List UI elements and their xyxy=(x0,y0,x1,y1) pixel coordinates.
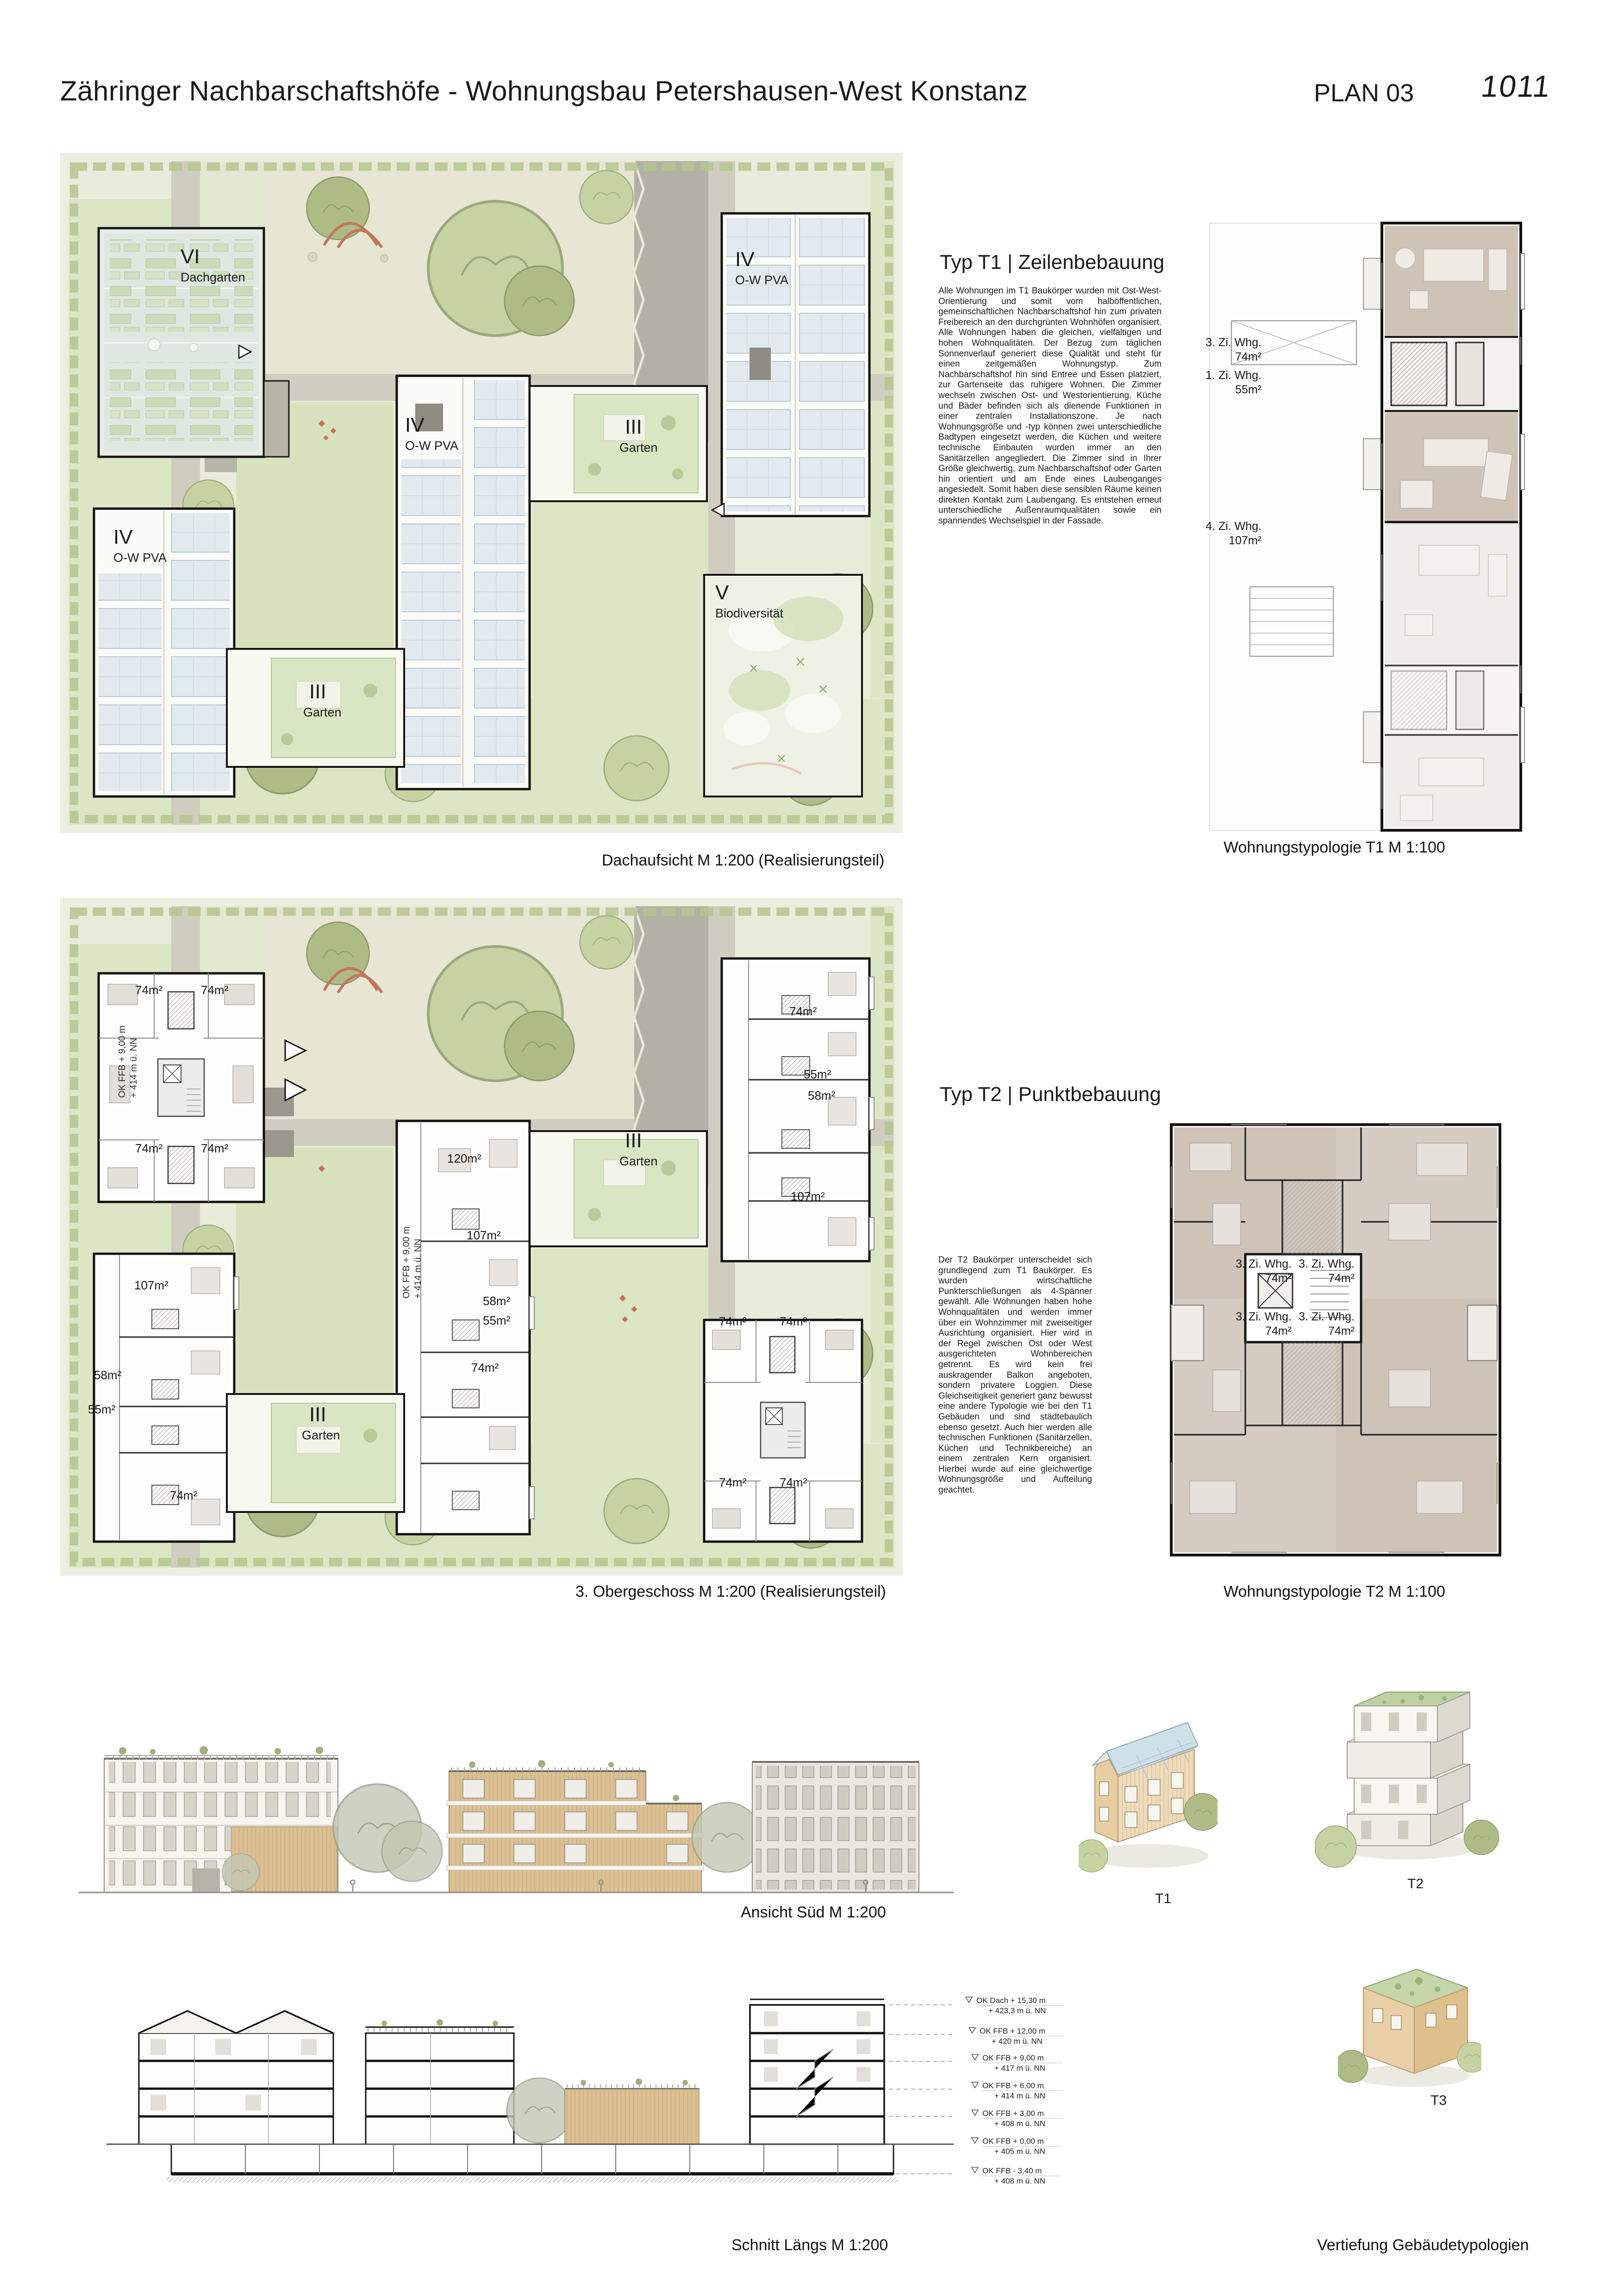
area-label: 74m² xyxy=(135,983,162,997)
t2-unit-area: 74m² xyxy=(1280,1271,1355,1286)
t2-unit-label: 3. Zi. Whg. 74m² xyxy=(1280,1257,1355,1286)
building-iv-east-numeral: IV xyxy=(735,249,755,270)
level-note-line2: + 414 m ü. NN xyxy=(412,1226,424,1299)
building-iii-east-numeral: III xyxy=(625,417,642,438)
level-label: OK FFB + 12,00 m xyxy=(980,2026,1064,2036)
t1-unit-label: 4. Zi. Whg. 107m² xyxy=(1183,519,1262,548)
level-altitude: + 420 m ü. NN xyxy=(980,2036,1064,2046)
typ-t1-body: Alle Wohnungen im T1 Baukörper wurden mi… xyxy=(938,286,1162,527)
area-label: 55m² xyxy=(88,1402,115,1417)
t1-unit-type: 1. Zi. Whg. xyxy=(1183,368,1262,383)
building-iv-west-name: O-W PVA xyxy=(113,551,167,565)
building-iv-east-name: O-W PVA xyxy=(735,273,788,287)
level-annotation: OK Dach + 15,30 m+ 423,3 m ü. NN xyxy=(965,1996,1064,2016)
typ-t1-heading: Typ T1 | Zeilenbebauung xyxy=(940,251,1164,274)
area-label: 58m² xyxy=(808,1089,835,1103)
garden-iii-east-name: Garten xyxy=(619,1154,658,1168)
level-altitude: + 414 m ü. NN xyxy=(982,2091,1062,2101)
building-iv-mid-numeral: IV xyxy=(405,415,425,436)
area-label: 74m² xyxy=(201,1141,228,1156)
t2-typology-drawing xyxy=(1157,1111,1514,1569)
area-label: 107m² xyxy=(791,1189,825,1204)
area-label: 74m² xyxy=(780,1314,807,1329)
area-label: 55m² xyxy=(483,1313,510,1328)
roof-plan-caption: Dachaufsicht M 1:200 (Realisierungsteil) xyxy=(602,852,884,870)
level-marker-icon xyxy=(971,2054,979,2060)
area-label: 58m² xyxy=(483,1294,510,1308)
level-label: OK Dach + 15,30 m xyxy=(976,1996,1064,2006)
section-drawing xyxy=(106,1972,954,2226)
level-altitude: + 417 m ü. NN xyxy=(982,2063,1062,2073)
t1-unit-type: 4. Zi. Whg. xyxy=(1183,519,1262,534)
level-altitude: + 423,3 m ü. NN xyxy=(976,2006,1064,2016)
area-label: 74m² xyxy=(719,1475,746,1490)
building-v-numeral: V xyxy=(715,582,729,604)
level-label: OK FFB - 3,40 m xyxy=(982,2166,1060,2176)
level-marker-icon xyxy=(971,2109,979,2116)
area-label: 107m² xyxy=(467,1228,501,1243)
level-marker-icon xyxy=(971,2137,979,2144)
area-label: 58m² xyxy=(94,1368,121,1382)
level-label: OK FFB + 9,00 m xyxy=(982,2053,1062,2063)
building-iv-west-numeral: IV xyxy=(113,527,133,548)
garden-iii-west-numeral: III xyxy=(309,1404,326,1425)
plan-number-label: PLAN 03 xyxy=(1314,79,1414,107)
level-altitude: + 408 m ü. NN xyxy=(982,2119,1062,2128)
typ-t2-body: Der T2 Baukörper unterscheidet sich grun… xyxy=(938,1255,1092,1496)
area-label: 74m² xyxy=(471,1361,499,1375)
area-label: 74m² xyxy=(201,983,228,997)
level-altitude: + 408 m ü. NN xyxy=(982,2176,1060,2186)
t2-typology-caption: Wohnungstypologie T2 M 1:100 xyxy=(1224,1583,1445,1601)
t1-unit-area: 107m² xyxy=(1183,534,1262,548)
t1-unit-label: 3. Zi. Whg. 74m² xyxy=(1183,336,1262,364)
t2-unit-type: 3. Zi. Whg. xyxy=(1280,1310,1355,1324)
level-note-line2: + 414 m ü. NN xyxy=(128,1026,140,1098)
building-iii-east-name: Garten xyxy=(619,441,658,454)
building-v-name: Biodiversität xyxy=(715,606,783,620)
building-iii-west-numeral: III xyxy=(309,681,326,703)
axon-t2-label: T2 xyxy=(1407,1876,1424,1892)
level-label: OK FFB + 3,00 m xyxy=(982,2109,1062,2119)
axon-t3-drawing xyxy=(1338,1948,1481,2097)
axon-t3-label: T3 xyxy=(1430,2093,1447,2109)
typologies-caption: Vertiefung Gebäudetypologien xyxy=(1317,2236,1529,2254)
area-label: 55m² xyxy=(804,1067,831,1082)
level-annotation: OK FFB + 0,00 m+ 405 m ü. NN xyxy=(971,2136,1062,2156)
building-vi-numeral: VI xyxy=(181,246,200,268)
level-note-nw: OK FFB + 9,00 m + 414 m ü. NN xyxy=(117,1026,140,1098)
page-title: Zähringer Nachbarschaftshöfe - Wohnungsb… xyxy=(60,75,1028,107)
building-iv-mid-name: O-W PVA xyxy=(405,439,458,453)
level-marker-icon xyxy=(971,2082,979,2088)
level-annotation: OK FFB + 6,00 m+ 414 m ü. NN xyxy=(971,2081,1062,2101)
t1-typology-caption: Wohnungstypologie T1 M 1:100 xyxy=(1224,839,1445,857)
garden-iii-west-name: Garten xyxy=(302,1428,340,1442)
elevation-drawing xyxy=(79,1719,954,1898)
level-note-line1: OK FFB + 9,00 m xyxy=(401,1226,412,1299)
level-label: OK FFB + 6,00 m xyxy=(982,2081,1062,2091)
area-label: 74m² xyxy=(170,1488,197,1503)
level-annotation: OK FFB + 3,00 m+ 408 m ü. NN xyxy=(971,2109,1062,2128)
og-plan-caption: 3. Obergeschoss M 1:200 (Realisierungste… xyxy=(575,1583,886,1601)
area-label: 107m² xyxy=(134,1278,169,1293)
level-label: OK FFB + 0,00 m xyxy=(982,2136,1062,2147)
axon-t1-label: T1 xyxy=(1155,1891,1171,1907)
level-marker-icon xyxy=(965,1997,973,2003)
level-marker-icon xyxy=(968,2027,976,2034)
typ-t2-heading: Typ T2 | Punktbebauung xyxy=(940,1083,1161,1106)
area-label: 120m² xyxy=(447,1151,481,1166)
area-label: 74m² xyxy=(780,1475,807,1490)
area-label: 74m² xyxy=(789,1004,817,1019)
level-marker-icon xyxy=(971,2167,979,2173)
level-altitude: + 405 m ü. NN xyxy=(982,2147,1062,2156)
level-annotation: OK FFB + 12,00 m+ 420 m ü. NN xyxy=(968,2026,1064,2046)
t1-unit-label: 1. Zi. Whg. 55m² xyxy=(1183,368,1262,397)
t1-unit-area: 55m² xyxy=(1183,383,1262,397)
level-annotation: OK FFB + 9,00 m+ 417 m ü. NN xyxy=(971,2053,1062,2073)
t2-unit-area: 74m² xyxy=(1280,1324,1355,1338)
level-note-line1: OK FFB + 9,00 m xyxy=(117,1026,128,1098)
t1-unit-type: 3. Zi. Whg. xyxy=(1183,336,1262,350)
competition-board: Zähringer Nachbarschaftshöfe - Wohnungsb… xyxy=(0,0,1624,2296)
building-iii-west-name: Garten xyxy=(303,705,342,719)
axon-t2-drawing xyxy=(1315,1661,1500,1874)
level-annotation: OK FFB - 3,40 m+ 408 m ü. NN xyxy=(971,2166,1060,2186)
t2-unit-label: 3. Zi. Whg. 74m² xyxy=(1280,1310,1355,1338)
area-label: 74m² xyxy=(135,1141,162,1156)
level-note-mid: OK FFB + 9,00 m + 414 m ü. NN xyxy=(401,1226,424,1299)
building-vi-name: Dachgarten xyxy=(181,270,245,284)
t2-unit-type: 3. Zi. Whg. xyxy=(1280,1257,1355,1271)
garden-iii-east-numeral: III xyxy=(625,1130,642,1151)
elevation-caption: Ansicht Süd M 1:200 xyxy=(741,1904,886,1922)
entry-number: 1011 xyxy=(1479,68,1553,104)
area-label: 74m² xyxy=(719,1314,746,1329)
t1-unit-area: 74m² xyxy=(1183,350,1262,364)
axon-t1-drawing xyxy=(1079,1703,1218,1888)
section-caption: Schnitt Längs M 1:200 xyxy=(731,2236,888,2254)
